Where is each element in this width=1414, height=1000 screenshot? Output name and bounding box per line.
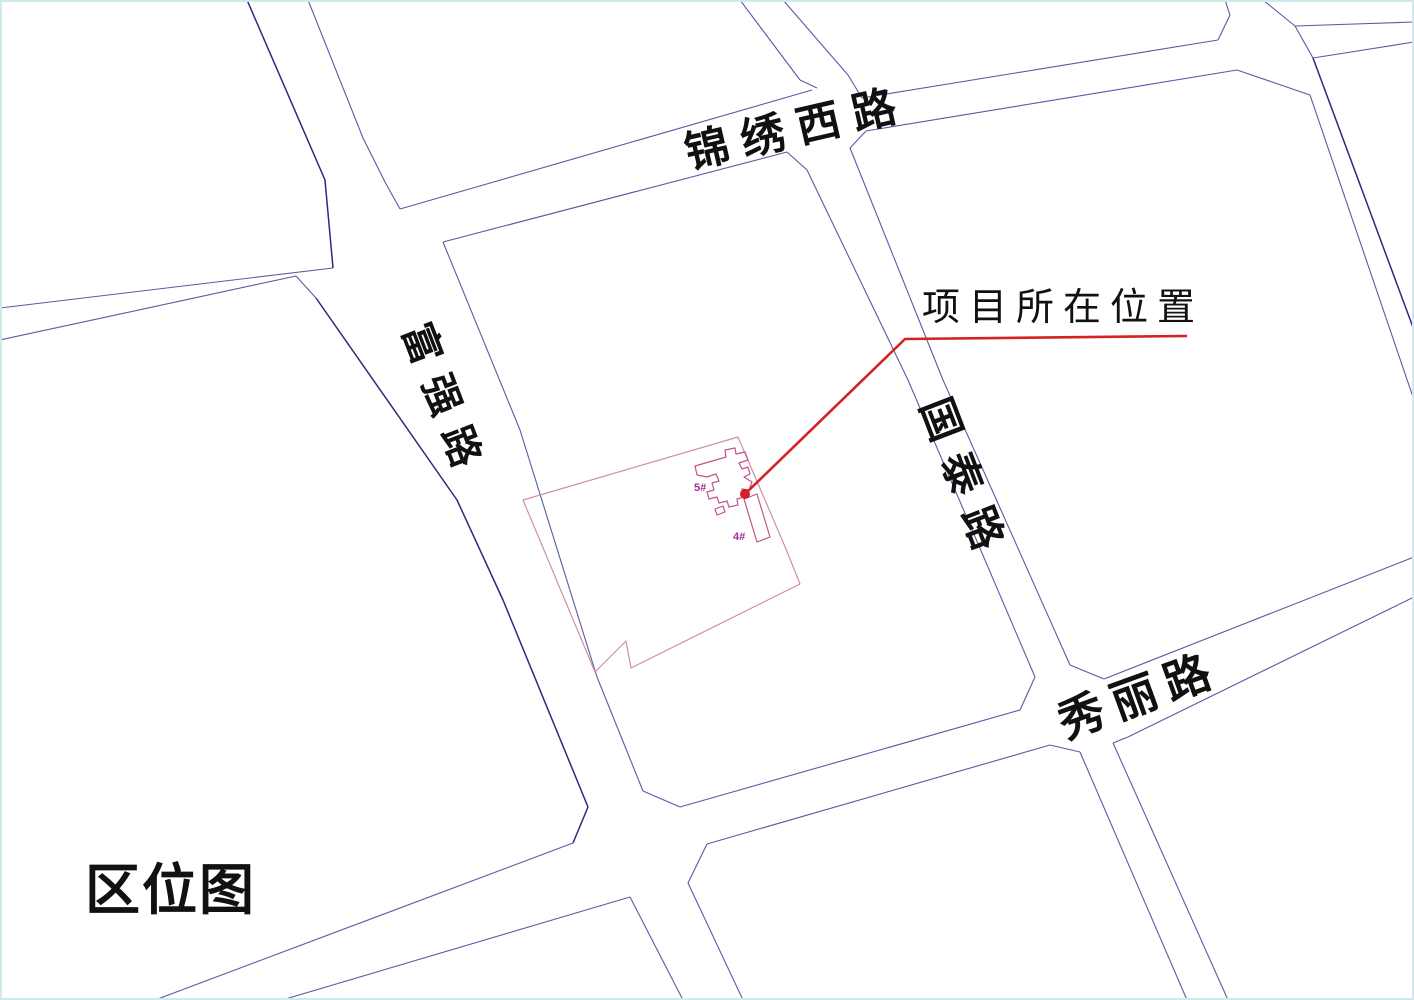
site-boundary (523, 437, 800, 672)
drawing-title: 区位图 (85, 860, 256, 920)
building-5-label: 5# (694, 482, 706, 494)
project-location-annotation: 项目所在位置 (922, 287, 1204, 329)
location-map: 锦绣西路 富强路 国泰路 秀丽路 项目所在位置 5# 4# 区位图 (0, 0, 1414, 1000)
building-4-label: 4# (733, 531, 745, 543)
location-dot (740, 489, 750, 499)
